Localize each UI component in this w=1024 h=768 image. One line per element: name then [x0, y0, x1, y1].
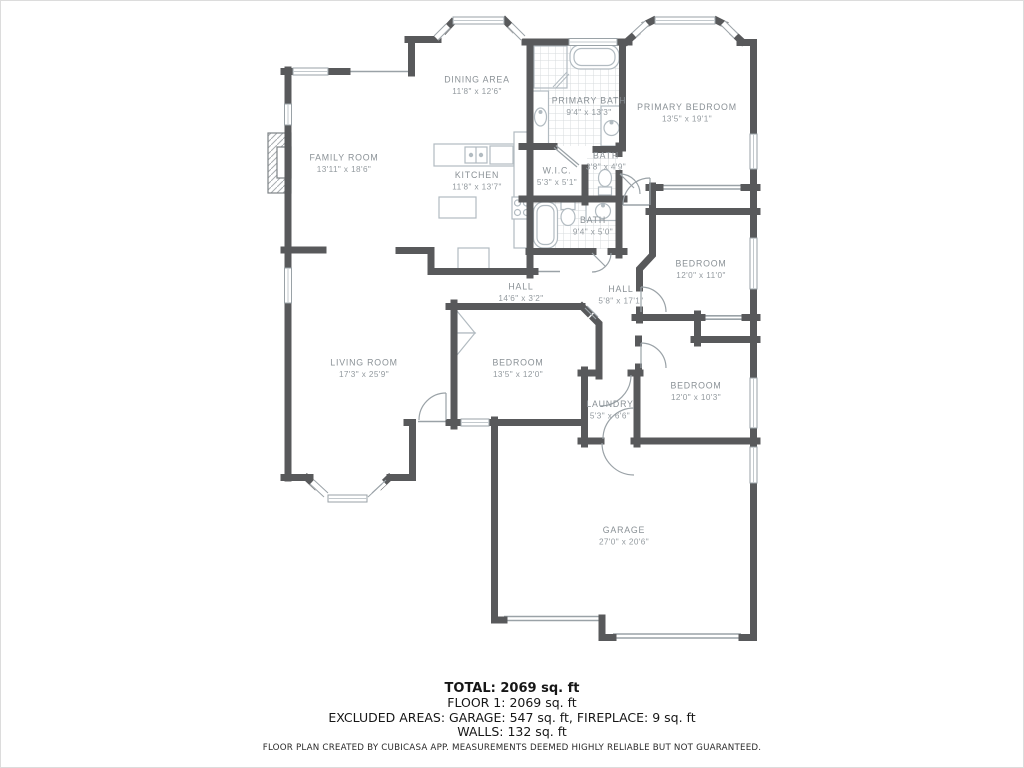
front-door — [419, 393, 446, 420]
sliding-doors-ne-closet — [702, 316, 745, 319]
room-label-primary-bedroom: PRIMARY BEDROOM — [637, 102, 737, 112]
room-dims-garage: 27'0" x 20'6" — [599, 538, 649, 547]
wall-bedroom-center-top — [449, 307, 588, 313]
floor1-area: FLOOR 1: 2069 sq. ft — [1, 696, 1023, 710]
wall-garage-jog — [602, 618, 613, 638]
room-label-hall-horizontal: HALL — [508, 282, 533, 292]
room-dims-primary-bath: 9'4" x 13'3" — [566, 108, 611, 117]
kitchen-sink — [465, 147, 487, 163]
area-summary: TOTAL: 2069 sq. ft FLOOR 1: 2069 sq. ft … — [1, 682, 1023, 739]
closet-doors-bedroom-center — [457, 311, 475, 355]
total-area: TOTAL: 2069 sq. ft — [1, 682, 1023, 696]
vanity-left — [533, 91, 549, 148]
wall-ne-closet — [635, 314, 757, 343]
room-label-wic: W.I.C. — [543, 166, 572, 176]
room-label-family-room: FAMILY ROOM — [309, 153, 378, 163]
toilet-small-bath — [599, 170, 612, 196]
garage-door-right — [613, 634, 741, 638]
room-dims-living-room: 17'3" x 25'9" — [339, 370, 389, 379]
floor-plan-page: DINING AREA 11'8" x 12'6" FAMILY ROOM 13… — [0, 0, 1024, 768]
wall-hall-left — [594, 319, 599, 377]
room-label-kitchen: KITCHEN — [455, 170, 499, 180]
bedroom-ne-door — [641, 287, 666, 312]
room-label-laundry: LAUNDRY — [586, 399, 633, 409]
room-dims-bedroom-se: 12'0" x 10'3" — [671, 393, 721, 402]
kitchen-island — [439, 197, 476, 218]
openings — [347, 72, 745, 639]
small-bath-door — [620, 174, 640, 194]
wall-living-right — [390, 423, 413, 478]
room-label-bath-main: BATH — [580, 215, 606, 225]
room-dims-kitchen: 11'8" x 13'7" — [452, 183, 502, 192]
walls-area: WALLS: 132 sq. ft — [1, 725, 1023, 739]
room-label-living-room: LIVING ROOM — [330, 358, 397, 368]
room-dims-hall-vertical: 5'8" x 17'1" — [598, 297, 643, 306]
refrigerator — [458, 248, 489, 269]
bathtub-primary — [570, 45, 619, 69]
disclaimer: FLOOR PLAN CREATED BY CUBICASA APP. MEAS… — [1, 743, 1023, 753]
bedroom-se-door — [641, 343, 666, 368]
room-label-primary-bath: PRIMARY BATH — [552, 96, 627, 106]
excluded-areas: EXCLUDED AREAS: GARAGE: 547 sq. ft, FIRE… — [1, 711, 1023, 725]
room-dims-bedroom-ne: 12'0" x 11'0" — [676, 271, 726, 280]
toilet-main-bath — [561, 202, 575, 226]
room-dims-wic: 5'3" x 5'1" — [537, 178, 577, 187]
main-bath-door — [592, 253, 611, 272]
room-label-bedroom-se: BEDROOM — [670, 381, 721, 391]
wall-hall-right — [637, 339, 639, 444]
room-label-bedroom-ne: BEDROOM — [675, 259, 726, 269]
room-label-garage: GARAGE — [603, 525, 645, 535]
wall-dining-step — [408, 40, 438, 74]
room-dims-bath-small: 3'8" x 4'9" — [586, 163, 626, 172]
room-label-dining-area: DINING AREA — [444, 75, 510, 85]
room-label-bath-small: BATH — [593, 151, 619, 161]
room-dims-dining-area: 11'8" x 12'6" — [452, 87, 502, 96]
garage-door-left — [504, 617, 599, 621]
room-dims-family-room: 13'11" x 18'6" — [317, 165, 371, 174]
room-dims-bath-main: 9'4" x 5'0" — [573, 228, 613, 237]
sliding-doors-primary-closet — [660, 186, 744, 190]
room-dims-hall-horizontal: 14'6" x 3'2" — [498, 294, 543, 303]
wall-garage-left — [495, 420, 505, 620]
room-label-bedroom-center: BEDROOM — [492, 358, 543, 368]
floor-plan: DINING AREA 11'8" x 12'6" FAMILY ROOM 13… — [1, 1, 1023, 767]
wic-door — [554, 146, 579, 168]
room-dims-primary-bedroom: 13'5" x 19'1" — [662, 115, 712, 124]
bathtub-main — [534, 202, 558, 248]
room-dims-laundry: 5'3" x 6'6" — [590, 412, 630, 421]
shower — [534, 46, 569, 89]
room-dims-bedroom-center: 13'5" x 12'0" — [493, 370, 543, 379]
walls — [284, 21, 757, 638]
room-label-hall-vertical: HALL — [608, 284, 633, 294]
